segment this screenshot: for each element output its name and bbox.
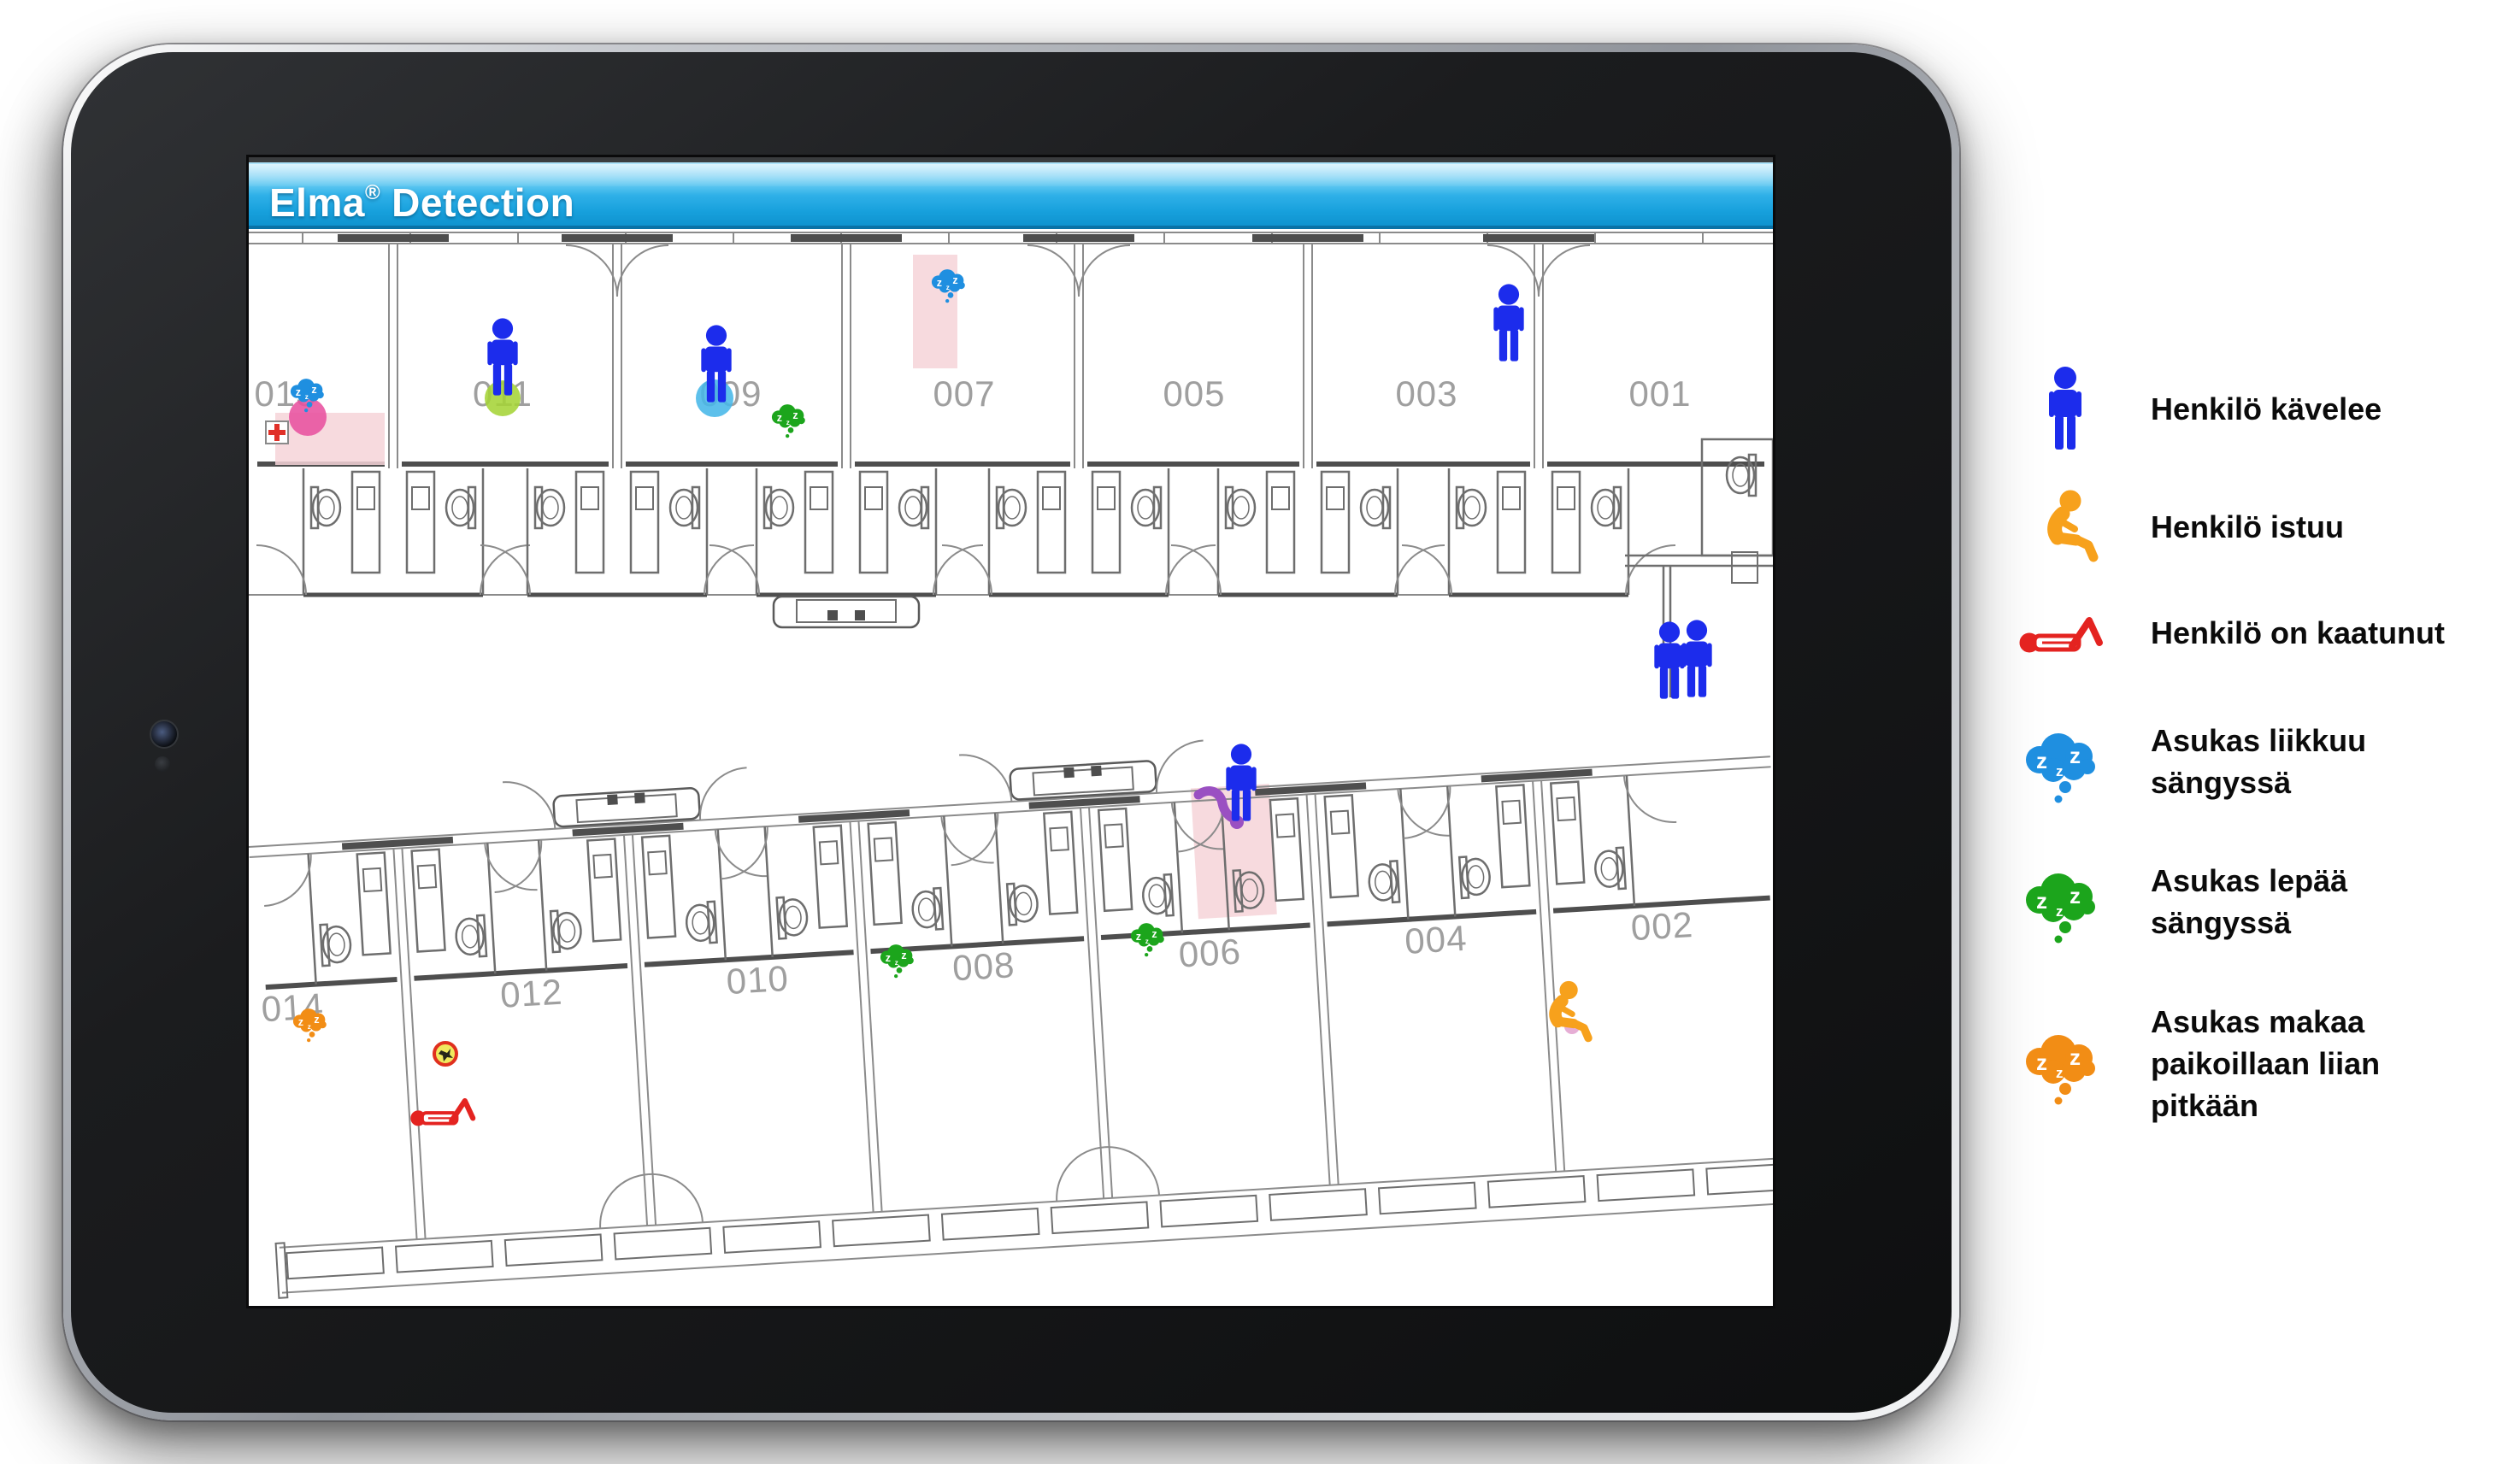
legend-person-sitting-icon [2009,473,2122,579]
legend-label: Asukas liikkuusängyssä [2151,720,2366,803]
legend-thought-bubble-icon [2009,708,2122,814]
legend-item-person-fallen-2: Henkilö on kaatunut [2009,583,2445,682]
room-number-010: 010 [725,958,790,1002]
legend-person-walking-icon [2009,356,2122,462]
legend-thought-bubble-icon [2009,849,2122,955]
app-title-rest: Detection [392,180,574,225]
app-title-brand: Elma [269,180,365,225]
legend-item-person-sitting-1: Henkilö istuu [2009,477,2344,576]
legend-panel: Henkilö käveleeHenkilö istuuHenkilö on k… [2009,0,2520,1464]
room-number-001: 001 [1628,373,1691,414]
tablet-device: Elma®Detection [63,44,1959,1420]
legend-label: Henkilö istuu [2151,506,2344,548]
room-number-008: 008 [951,944,1016,988]
marker-person-walking-corridor [1681,620,1711,697]
marker-person-walking-003 [1493,284,1523,361]
marker-alert-icon-012 [434,1043,456,1065]
marker-first-aid-icon-013 [266,421,288,444]
room-number-012: 012 [499,972,564,1015]
legend-label: Asukas makaapaikoillaan liianpitkään [2151,1001,2380,1126]
floor-plan[interactable]: zzz 013011009007005003001014012010008006… [249,229,1773,1306]
tablet-screen[interactable]: Elma®Detection [249,157,1773,1306]
room-number-006: 006 [1177,931,1242,974]
app-title-bar: Elma®Detection [249,162,1773,229]
room-number-005: 005 [1163,373,1225,414]
front-camera [150,720,179,749]
registered-trademark-icon: ® [365,181,380,204]
light-sensor [155,756,170,772]
legend-label: Henkilö kävelee [2151,388,2382,430]
legend-thought-bubble-icon [2009,1010,2122,1116]
room-number-004: 004 [1404,918,1469,961]
app-title: Elma®Detection [269,162,574,226]
legend-item-thought-bubble-4: Asukas lepääsängyssä [2009,839,2347,964]
marker-bubble-resting-in-bed-006 [1131,923,1164,956]
marker-person-fallen-012 [411,1101,474,1126]
marker-presence-dot-011 [485,380,521,416]
legend-label: Henkilö on kaatunut [2151,612,2445,654]
room-number-003: 003 [1395,373,1457,414]
marker-bubble-resting-in-bed-009 [772,404,805,438]
legend-label: Asukas lepääsängyssä [2151,860,2347,944]
legend-item-thought-bubble-5: Asukas makaapaikoillaan liianpitkään [2009,974,2380,1152]
room-number-002: 002 [1630,904,1695,948]
legend-item-person-walking-0: Henkilö kävelee [2009,359,2382,458]
legend-item-thought-bubble-3: Asukas liikkuusängyssä [2009,699,2366,824]
room-number-007: 007 [933,373,995,414]
floor-plan-walls: 0130110090070050030010140120100080060040… [249,232,1773,1298]
legend-person-fallen-icon [2009,579,2122,685]
